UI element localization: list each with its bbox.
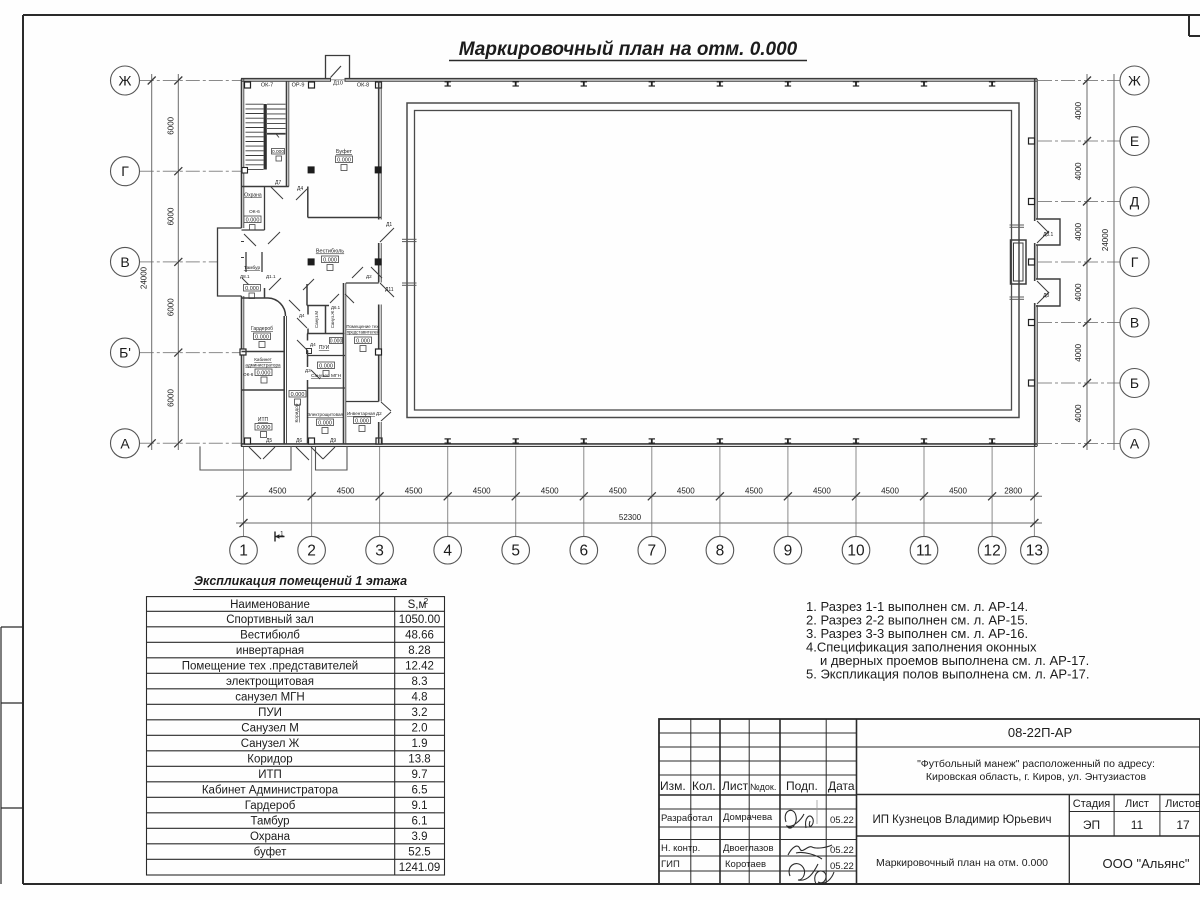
svg-text:Коротаев: Коротаев xyxy=(725,859,766,870)
svg-text:6: 6 xyxy=(579,543,588,560)
svg-text:Д3: Д3 xyxy=(305,368,311,373)
svg-text:0.000: 0.000 xyxy=(246,217,260,223)
svg-text:0.000: 0.000 xyxy=(319,363,333,369)
svg-text:0.000: 0.000 xyxy=(318,420,332,426)
svg-text:Листов: Листов xyxy=(1165,798,1200,810)
svg-text:Изм.: Изм. xyxy=(660,779,686,793)
svg-text:4500: 4500 xyxy=(541,486,559,495)
svg-text:4000: 4000 xyxy=(1074,222,1083,240)
svg-text:17: 17 xyxy=(1176,818,1190,832)
svg-text:4500: 4500 xyxy=(745,486,763,495)
svg-text:0.000: 0.000 xyxy=(337,157,351,163)
svg-text:Д11: Д11 xyxy=(385,287,394,293)
svg-text:4500: 4500 xyxy=(609,486,627,495)
svg-text:Дата: Дата xyxy=(828,779,855,793)
svg-text:Помещение тех.: Помещение тех. xyxy=(346,324,379,329)
svg-text:Экспликация помещений 1 этажа: Экспликация помещений 1 этажа xyxy=(194,574,407,588)
svg-text:6.1: 6.1 xyxy=(412,816,428,828)
svg-text:Тамбур: Тамбур xyxy=(250,816,289,828)
svg-text:0.000: 0.000 xyxy=(257,370,271,376)
svg-text:Н. контр.: Н. контр. xyxy=(661,843,700,854)
svg-text:Кабинет: Кабинет xyxy=(254,357,272,362)
svg-text:8: 8 xyxy=(716,543,725,560)
svg-text:0.000: 0.000 xyxy=(323,257,337,263)
svg-text:6.5: 6.5 xyxy=(412,785,428,797)
svg-text:Гардероб: Гардероб xyxy=(251,326,273,332)
svg-text:Кол.: Кол. xyxy=(692,779,716,793)
svg-text:05.22: 05.22 xyxy=(830,845,854,856)
svg-text:Сануз.М: Сануз.М xyxy=(314,311,319,329)
svg-text:1241.09: 1241.09 xyxy=(399,862,441,874)
svg-text:Охрана: Охрана xyxy=(244,193,262,199)
svg-text:4000: 4000 xyxy=(1074,283,1083,301)
svg-text:Д1.1: Д1.1 xyxy=(266,274,276,279)
svg-text:Буфет: Буфет xyxy=(336,149,353,155)
svg-text:3.2: 3.2 xyxy=(412,707,428,719)
svg-text:05.22: 05.22 xyxy=(830,815,854,826)
svg-text:Лист: Лист xyxy=(722,779,749,793)
svg-text:2: 2 xyxy=(307,543,316,560)
svg-text:Помещение тех .представителей: Помещение тех .представителей xyxy=(182,661,358,673)
svg-text:ЭП: ЭП xyxy=(1083,818,1100,832)
svg-text:Лист: Лист xyxy=(1125,798,1149,810)
svg-text:Б': Б' xyxy=(119,345,131,361)
svg-text:5: 5 xyxy=(511,543,520,560)
svg-text:Ж: Ж xyxy=(119,73,132,89)
svg-text:Домрачева: Домрачева xyxy=(723,812,773,823)
svg-text:Коридор: Коридор xyxy=(294,403,300,422)
svg-text:12.42: 12.42 xyxy=(405,661,434,673)
svg-text:Двоеглазов: Двоеглазов xyxy=(723,843,774,854)
svg-text:ПУИ: ПУИ xyxy=(258,707,282,719)
svg-text:Д4: Д4 xyxy=(297,186,303,192)
svg-text:Д10: Д10 xyxy=(333,81,343,87)
svg-text:4500: 4500 xyxy=(813,486,831,495)
svg-text:Б: Б xyxy=(1130,375,1139,391)
svg-text:4: 4 xyxy=(443,543,452,560)
svg-text:Д4: Д4 xyxy=(299,313,305,318)
svg-text:Стадия: Стадия xyxy=(1073,798,1111,810)
svg-text:Д9: Д9 xyxy=(330,438,336,444)
svg-text:0.000: 0.000 xyxy=(257,425,271,431)
svg-text:4000: 4000 xyxy=(1074,404,1083,422)
svg-text:13: 13 xyxy=(1026,543,1043,560)
svg-text:3: 3 xyxy=(375,543,384,560)
svg-text:0.000: 0.000 xyxy=(245,286,259,292)
svg-text:0.000: 0.000 xyxy=(272,149,284,155)
svg-text:4000: 4000 xyxy=(1074,101,1083,119)
svg-text:№док.: №док. xyxy=(750,782,776,792)
svg-text:Д1: Д1 xyxy=(386,222,392,228)
svg-text:3.9: 3.9 xyxy=(412,831,428,843)
svg-text:Маркировочный план на отм. 0.0: Маркировочный план на отм. 0.000 xyxy=(876,857,1048,869)
svg-text:Д5: Д5 xyxy=(266,438,272,444)
svg-text:2.0: 2.0 xyxy=(412,723,428,735)
svg-text:0.000: 0.000 xyxy=(356,338,370,344)
svg-text:0.000: 0.000 xyxy=(291,392,305,398)
svg-text:Тамбур: Тамбур xyxy=(244,265,261,271)
svg-text:6000: 6000 xyxy=(167,116,176,134)
svg-text:А: А xyxy=(120,435,130,451)
svg-text:ООО "Альянс": ООО "Альянс" xyxy=(1103,856,1190,871)
svg-text:"Футбольный манеж" расположенн: "Футбольный манеж" расположенный по адре… xyxy=(917,758,1155,770)
svg-text:1: 1 xyxy=(280,531,284,538)
svg-text:4500: 4500 xyxy=(677,486,695,495)
svg-text:4500: 4500 xyxy=(337,486,355,495)
svg-text:Вестибюль: Вестибюль xyxy=(316,249,344,255)
svg-text:ОК-6: ОК-6 xyxy=(243,372,254,377)
svg-text:ОК-6: ОК-6 xyxy=(249,209,260,215)
svg-text:6000: 6000 xyxy=(167,207,176,225)
svg-text:В: В xyxy=(120,254,129,270)
svg-text:ОК-7: ОК-7 xyxy=(261,83,273,89)
svg-text:1050.00: 1050.00 xyxy=(399,614,441,626)
svg-text:Маркировочный план на отм. 0.0: Маркировочный план на отм. 0.000 xyxy=(459,39,798,60)
svg-text:11: 11 xyxy=(916,543,932,560)
svg-text:24000: 24000 xyxy=(1101,228,1110,251)
svg-text:13.8: 13.8 xyxy=(408,754,430,766)
svg-text:Сануз.Ж: Сануз.Ж xyxy=(330,311,335,329)
svg-text:0.000: 0.000 xyxy=(355,418,369,424)
svg-text:9.7: 9.7 xyxy=(412,769,428,781)
svg-text:ПУИ: ПУИ xyxy=(319,345,330,351)
svg-text:2800: 2800 xyxy=(1004,486,1022,495)
svg-text:9.1: 9.1 xyxy=(412,800,428,812)
svg-text:Санузел Ж: Санузел Ж xyxy=(241,738,300,750)
svg-text:2: 2 xyxy=(424,597,429,606)
svg-text:6000: 6000 xyxy=(167,389,176,407)
svg-text:ОК-8: ОК-8 xyxy=(357,83,369,89)
svg-text:4500: 4500 xyxy=(881,486,899,495)
svg-text:Г: Г xyxy=(1131,254,1139,270)
svg-text:Д4: Д4 xyxy=(310,342,316,347)
svg-text:Д2: Д2 xyxy=(376,411,382,416)
svg-text:ИП Кузнецов Владимир Юрьевич: ИП Кузнецов Владимир Юрьевич xyxy=(872,814,1051,826)
svg-text:52.5: 52.5 xyxy=(408,847,430,859)
svg-text:ГИП: ГИП xyxy=(661,859,680,870)
svg-text:инвертарная: инвертарная xyxy=(236,645,304,657)
svg-text:Электрощитовая: Электрощитовая xyxy=(307,412,344,417)
svg-text:буфет: буфет xyxy=(254,847,287,859)
svg-text:9: 9 xyxy=(784,543,793,560)
svg-text:Санузел МГН: Санузел МГН xyxy=(311,373,342,379)
svg-text:Коридор: Коридор xyxy=(247,754,292,766)
svg-text:4500: 4500 xyxy=(405,486,423,495)
svg-text:В: В xyxy=(1130,315,1139,331)
svg-text:4000: 4000 xyxy=(1074,162,1083,180)
svg-text:48.66: 48.66 xyxy=(405,630,434,642)
svg-text:Д6: Д6 xyxy=(296,438,302,444)
svg-text:Д: Д xyxy=(1130,194,1140,210)
svg-text:Разработал: Разработал xyxy=(661,813,713,824)
svg-text:Д8.1: Д8.1 xyxy=(1043,232,1054,238)
svg-text:Д2: Д2 xyxy=(366,274,372,279)
svg-text:4000: 4000 xyxy=(1074,343,1083,361)
svg-text:7: 7 xyxy=(647,543,656,560)
svg-text:5. Экспликация полов выполнена: 5. Экспликация полов выполнена см. л. АР… xyxy=(806,667,1090,682)
svg-text:Д6.1: Д6.1 xyxy=(331,305,341,310)
svg-text:1: 1 xyxy=(239,543,248,560)
svg-text:электрощитовая: электрощитовая xyxy=(226,676,314,688)
svg-text:Кировская область, г. Киров, у: Кировская область, г. Киров, ул. Энтузиа… xyxy=(926,771,1147,783)
svg-text:8.3: 8.3 xyxy=(412,676,428,688)
svg-text:Инвентарная: Инвентарная xyxy=(347,411,376,416)
svg-text:Наименование: Наименование xyxy=(230,599,310,611)
svg-text:0.000: 0.000 xyxy=(330,339,343,345)
svg-text:Д7: Д7 xyxy=(275,180,281,186)
svg-text:0.000: 0.000 xyxy=(255,334,269,340)
svg-text:11: 11 xyxy=(1131,818,1144,832)
svg-text:4500: 4500 xyxy=(269,486,287,495)
svg-text:10: 10 xyxy=(847,543,865,560)
svg-text:24000: 24000 xyxy=(140,266,149,289)
svg-text:8.28: 8.28 xyxy=(408,645,430,657)
svg-text:Подп.: Подп. xyxy=(786,779,818,793)
svg-text:Е: Е xyxy=(1130,133,1139,149)
svg-text:ИТП: ИТП xyxy=(258,417,269,423)
svg-text:представителей: представителей xyxy=(347,330,380,335)
svg-text:05.22: 05.22 xyxy=(830,861,854,872)
svg-text:Д8.1: Д8.1 xyxy=(240,274,250,279)
svg-text:4500: 4500 xyxy=(473,486,491,495)
svg-text:4500: 4500 xyxy=(949,486,967,495)
svg-text:Гардероб: Гардероб xyxy=(245,800,296,812)
svg-text:Санузел М: Санузел М xyxy=(241,723,299,735)
svg-text:1.9: 1.9 xyxy=(412,738,428,750)
svg-text:Кабинет Администратора: Кабинет Администратора xyxy=(202,785,339,797)
svg-text:52300: 52300 xyxy=(619,513,642,522)
svg-text:12: 12 xyxy=(983,543,1000,560)
svg-text:Спортивный зал: Спортивный зал xyxy=(226,614,314,626)
svg-text:Вестибюлб: Вестибюлб xyxy=(240,630,300,642)
svg-text:санузел МГН: санузел МГН xyxy=(235,692,304,704)
svg-text:6000: 6000 xyxy=(167,298,176,316)
svg-text:Д8: Д8 xyxy=(1043,293,1049,299)
svg-text:Г: Г xyxy=(121,163,129,179)
svg-text:08-22П-АР: 08-22П-АР xyxy=(1008,725,1072,740)
svg-text:Ж: Ж xyxy=(1128,73,1141,89)
svg-text:А: А xyxy=(1130,436,1140,452)
svg-text:4.8: 4.8 xyxy=(412,692,428,704)
svg-text:администратора: администратора xyxy=(245,363,281,368)
svg-text:ИТП: ИТП xyxy=(258,769,282,781)
svg-text:ОР-9: ОР-9 xyxy=(292,83,305,89)
svg-text:Охрана: Охрана xyxy=(250,831,291,843)
